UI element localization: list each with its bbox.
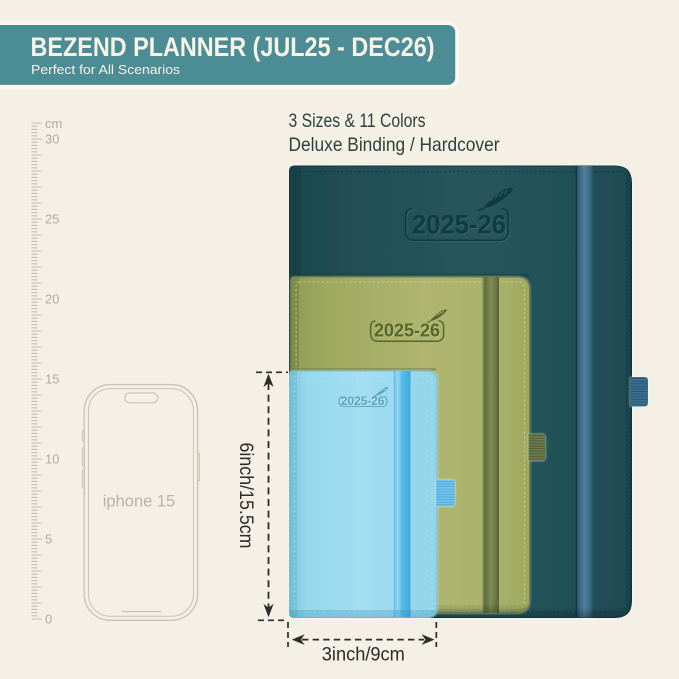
svg-text:20: 20 bbox=[45, 292, 59, 307]
svg-text:6inch/15.5cm: 6inch/15.5cm bbox=[235, 443, 256, 549]
svg-text:2025-26: 2025-26 bbox=[412, 210, 506, 240]
svg-text:30: 30 bbox=[45, 132, 59, 147]
svg-text:10: 10 bbox=[45, 452, 59, 467]
svg-text:15: 15 bbox=[45, 372, 59, 387]
svg-text:cm: cm bbox=[45, 116, 62, 131]
svg-text:3inch/9cm: 3inch/9cm bbox=[322, 643, 405, 665]
svg-text:3 Sizes & 11 Colors: 3 Sizes & 11 Colors bbox=[289, 111, 426, 132]
svg-text:Perfect for All Scenarios: Perfect for All Scenarios bbox=[31, 62, 181, 77]
svg-text:0: 0 bbox=[45, 612, 52, 627]
svg-text:2025-26: 2025-26 bbox=[374, 320, 440, 341]
svg-text:BEZEND PLANNER (JUL25 - DEC26): BEZEND PLANNER (JUL25 - DEC26) bbox=[31, 32, 435, 62]
svg-text:Deluxe Binding / Hardcover: Deluxe Binding / Hardcover bbox=[289, 134, 500, 156]
svg-text:25: 25 bbox=[45, 212, 59, 227]
svg-text:iphone 15: iphone 15 bbox=[103, 493, 176, 511]
svg-text:5: 5 bbox=[45, 532, 52, 547]
